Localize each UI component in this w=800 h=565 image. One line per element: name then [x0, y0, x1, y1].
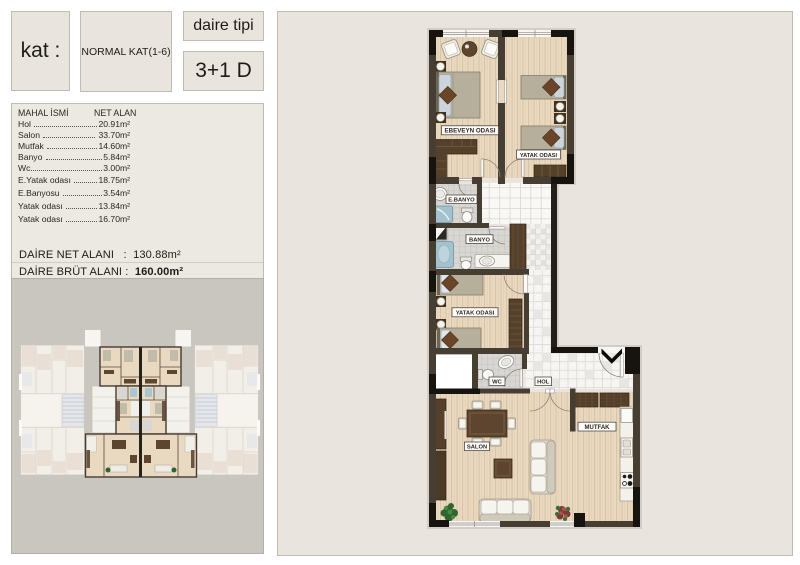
- svg-text:MUTFAK: MUTFAK: [585, 425, 611, 431]
- svg-text:BANYO: BANYO: [469, 237, 490, 243]
- svg-text:E.BANYO: E.BANYO: [448, 198, 475, 204]
- svg-text:HOL: HOL: [537, 380, 550, 386]
- svg-text:YATAK ODASI: YATAK ODASI: [520, 153, 558, 159]
- svg-text:YATAK ODASI: YATAK ODASI: [456, 311, 495, 317]
- svg-text:WC: WC: [492, 380, 502, 386]
- svg-text:EBEVEYN ODASI: EBEVEYN ODASI: [445, 128, 496, 135]
- svg-text:SALON: SALON: [467, 445, 487, 451]
